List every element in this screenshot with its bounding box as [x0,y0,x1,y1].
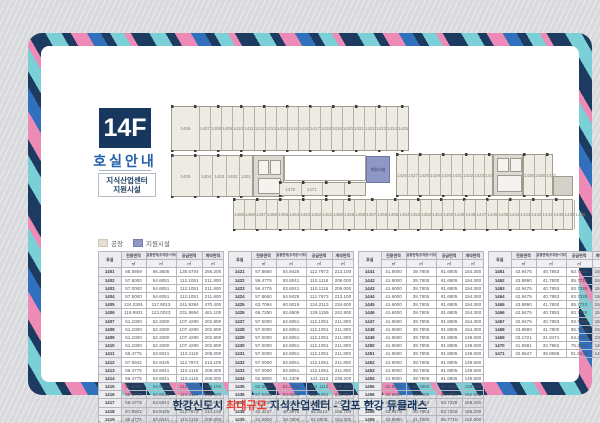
area-cell: 41.9000 [381,333,406,341]
core-cell [497,175,522,192]
area-cell: 41.9000 [381,317,406,325]
room-number: 1446 [487,212,497,217]
plan-room-1446: 1446 [487,200,498,229]
area-cell: 81.6246 [566,350,592,358]
area-cell: 241.9394 [176,301,202,309]
col-unit: ㎡ [436,260,462,268]
room-cell: 1468 [489,325,512,333]
plan-room-1421: 1421 [354,107,365,150]
area-cell: 51.1000 [121,317,146,325]
area-cell: 81.6805 [436,350,462,358]
room-cell: 1467 [489,317,512,325]
table-row: 1405124.0391117.9013241.9394470.400 [99,301,224,309]
area-cell: 117.9013 [146,301,176,309]
area-cell: 213.100 [202,358,223,366]
room-number: 1423 [376,126,386,131]
table-row: 143157.000054.6051112.1051211.800 [229,350,354,358]
table-row: 146342.947540.785383.7328158.200 [489,284,600,292]
area-cell: 62.6805 [251,383,276,391]
area-cell: 124.0391 [121,301,146,309]
page-title: 호실안내 [87,151,163,171]
room-number: 1439 [564,212,574,217]
col-header: 전용면적 [251,252,276,260]
room-number: 1456 [377,212,387,217]
area-cell: 110.1116 [306,284,332,292]
area-cell: 140.800 [592,342,600,350]
area-cell: 39.7805 [406,325,436,333]
plan-room-1419: 1419 [332,107,343,150]
room-cell: 1448 [359,325,382,333]
area-cell: 208.000 [202,366,223,374]
area-cell: 112.7973 [306,292,332,300]
col-unit: ㎡ [176,260,202,268]
atrium-void [284,155,366,181]
col-unit: ㎡ [406,260,436,268]
room-number: 1444 [509,212,519,217]
area-cell: 41.9000 [381,350,406,358]
room-number: 1410 [233,126,243,131]
col-header: 계약면적 [592,252,600,260]
plan-room-1413: 1413 [266,107,277,150]
area-cell: 83.7328 [566,309,592,317]
plan-room-1455: 1455 [388,200,399,229]
area-cell: 129.1159 [306,309,332,317]
support-facility-room: 지원시설 [366,156,390,183]
plan-room-1402: 1402 [227,156,240,196]
room-number: 1449 [454,212,464,217]
area-cell: 208.000 [332,276,353,284]
col-unit: ㎡ [251,260,276,268]
area-cell: 42.9475 [511,292,536,300]
area-cell: 85.7710 [566,325,592,333]
area-cell: 56.4775 [251,284,276,292]
area-cell: 42.5547 [511,350,536,358]
plan-room-1431: 1431 [452,155,463,195]
room-cell: 1427 [229,317,252,325]
plan-band-top: 1406140714081409141014111412141314141415… [171,106,409,151]
table-row: 144541.900039.780581.6805154.300 [359,301,484,309]
area-cell: 57.8942 [121,383,146,391]
area-cell: 158.200 [592,309,600,317]
area-cell: 208.000 [202,350,223,358]
area-cell: 149.500 [462,342,483,350]
area-cell: 158.200 [592,284,600,292]
area-cell: 60.5019 [276,301,306,309]
table-row: 143257.000054.6051112.1051211.800 [229,358,354,366]
table-row: 147142.554739.069981.6246141.100 [489,350,600,358]
room-number: 1451 [432,212,442,217]
service-annex [553,176,573,196]
plan-room-1459: 1459 [344,200,355,229]
area-cell: 39.7805 [406,350,436,358]
room-cell: 1430 [229,342,252,350]
area-cell: 54.9425 [146,383,176,391]
col-unit: ㎡ [276,260,306,268]
area-cell: 112.1051 [306,333,332,341]
area-cell: 124.1113 [306,383,332,391]
area-cell: 81.6805 [436,292,462,300]
tagline-brand: 김포 한강 듀클래스 [340,400,427,412]
legend-item-support: 지원시설 [133,238,170,248]
room-number: 1408 [211,126,221,131]
area-cell: 39.7805 [406,342,436,350]
area-cell: 41.9000 [381,358,406,366]
legend-label: 지원시설 [146,238,170,248]
room-number: 1436 [535,173,545,178]
area-cell: 208.000 [332,284,353,292]
room-cell: 1449 [359,333,382,341]
table-row: 143462.680561.4308124.1113236.200 [229,374,354,382]
plan-room-1423: 1423 [376,107,387,150]
area-cell: 41.9000 [381,276,406,284]
room-cell: 1465 [489,301,512,309]
header-divider [99,170,151,171]
plan-room-1466: 1466 [267,200,278,229]
area-cell: 41.9000 [381,301,406,309]
table-row: 145041.900039.780581.6805149.500 [359,342,484,350]
plan-room-1470: 1470 [280,183,302,195]
plan-room-1426: 1426 [397,155,408,195]
table-row: 144341.900039.780581.6805154.300 [359,284,484,292]
area-cell: 41.5581 [511,342,536,350]
area-cell: 202.900 [202,317,223,325]
area-cell: 470.400 [202,301,223,309]
elevator-core-right [493,154,523,196]
area-cell: 41.9000 [381,325,406,333]
col-header: 공급면적 [306,252,332,260]
area-cell: 110.1116 [176,374,202,382]
area-cell: 85.7710 [566,301,592,309]
area-cell: 52.3290 [146,325,176,333]
table-row: 142157.866054.9425112.7973213.100 [229,268,354,276]
area-cell: 112.1051 [306,350,332,358]
area-cell: 40.7853 [536,284,566,292]
col-unit: ㎡ [146,260,176,268]
area-cell: 39.7805 [406,333,436,341]
area-cell: 124.1113 [306,374,332,382]
area-cell: 41.9000 [381,374,406,382]
room-cell: 1413 [99,366,122,374]
area-cell: 81.6805 [436,366,462,374]
col-unit: ㎡ [536,260,566,268]
area-cell: 112.1051 [176,284,202,292]
core-cell [258,178,281,194]
room-cell: 1453 [359,366,382,374]
area-cell: 57.8660 [251,268,276,276]
area-cell: 39.7805 [406,284,436,292]
area-cell: 154.300 [462,309,483,317]
room-cell: 1426 [229,309,252,317]
area-cell: 64.2192 [566,333,592,341]
area-cell: 236.200 [332,374,353,382]
table-row: 143357.000054.6051112.1051211.800 [229,366,354,374]
area-cell: 39.7805 [406,301,436,309]
room-cell: 1421 [229,268,252,276]
area-cell: 66.3605 [146,268,176,276]
area-cell: 61.4308 [276,374,306,382]
area-cell: 85.7710 [566,276,592,284]
room-cell: 1445 [359,301,382,309]
room-number: 1421 [354,126,364,131]
plan-room-1415: 1415 [288,107,299,150]
plan-room-1460: 1460 [333,200,344,229]
col-unit: ㎡ [332,260,353,268]
col-header: 공급면적 [566,252,592,260]
plan-room-1464: 1464 [289,200,300,229]
table-row: 140951.100052.3290107.4290202.900 [99,333,224,341]
room-number: 1416 [299,126,309,131]
col-header: 전용면적 [381,252,406,260]
plan-room-1443: 1443 [520,200,531,229]
area-cell: 54.6051 [276,333,306,341]
room-number: 1417 [310,126,320,131]
area-cell: 81.6805 [436,374,462,382]
area-cell: 57.0000 [251,358,276,366]
room-cell: 1435 [229,383,252,391]
area-cell: 51.1000 [121,342,146,350]
area-cell: 39.7805 [406,268,436,276]
area-cell: 54.6051 [276,358,306,366]
col-unit: ㎡ [381,260,406,268]
table-row: 1406119.9931113.0023231.9954461.100 [99,309,224,317]
area-cell: 110.1116 [306,276,332,284]
area-cell: 40.7853 [536,309,566,317]
area-cell: 66.7250 [251,309,276,317]
area-cell: 256.200 [202,268,223,276]
unit-table: 호실전용면적공용면적(주차장+기타)공급면적계약면적㎡㎡㎡㎡146142.947… [488,251,600,358]
col-unit: ㎡ [462,260,483,268]
tagline-highlight: 최대규모 [226,400,266,412]
room-cell: 1428 [229,325,252,333]
plan-room-1412: 1412 [255,107,266,150]
area-cell: 81.6805 [436,325,462,333]
area-cell: 54.6051 [276,342,306,350]
room-cell: 1401 [99,268,122,276]
area-cell: 54.9425 [276,292,306,300]
table-row: 143057.000054.6051112.1051211.800 [229,342,354,350]
area-cell: 112.1051 [176,276,202,284]
area-cell: 43.8890 [511,276,536,284]
area-cell: 112.7973 [176,358,202,366]
area-cell: 54.6051 [276,325,306,333]
area-cell: 57.0000 [251,333,276,341]
room-number: 1406 [180,126,190,131]
room-number: 1405 [180,174,190,179]
area-cell: 110.1116 [176,350,202,358]
table-row: 144741.900039.780581.6805154.300 [359,317,484,325]
area-cell: 52.3290 [146,342,176,350]
area-cell: 42.9475 [511,317,536,325]
col-header: 공용면적(주차장+기타) [276,252,306,260]
area-cell: 202.900 [202,333,223,341]
core-cell [497,158,509,172]
area-cell: 211.800 [332,342,353,350]
room-cell: 1446 [359,309,382,317]
area-cell: 158.200 [462,383,483,391]
table-row: 142757.500054.6051112.1051211.800 [229,317,354,325]
plan-band-mid-right-a: 142614271428142914301431143214331434 [396,154,493,196]
area-cell: 83.7328 [436,383,462,391]
room-number: 1432 [463,173,473,178]
plan-room-1468: 1468 [245,200,256,229]
plan-room-1405: 1405 [172,156,200,196]
col-header: 계약면적 [462,252,483,260]
plan-room-1458: 1458 [355,200,366,229]
area-cell: 57.0000 [251,325,276,333]
area-cell: 57.5000 [251,317,276,325]
area-cell: 211.800 [202,292,223,300]
room-cell: 1411 [99,350,122,358]
area-cell: 56.4775 [121,374,146,382]
area-cell: 61.4308 [276,383,306,391]
room-number: 1441 [542,212,552,217]
area-cell: 33.7862 [536,342,566,350]
area-cell: 62.6909 [276,309,306,317]
room-cell: 1450 [359,342,382,350]
plan-band-strip: 14701471 [279,182,366,196]
area-cell: 81.6805 [436,301,462,309]
area-cell: 43.8890 [511,301,536,309]
room-number: 1435 [524,173,534,178]
col-unit: ㎡ [306,260,332,268]
room-cell: 1443 [359,284,382,292]
room-number: 1468 [245,212,255,217]
plan-room-1441: 1441 [542,200,553,229]
table-row: 146142.947540.785383.7328158.200 [489,268,600,276]
room-cell: 1424 [229,292,252,300]
legend-label: 공장 [111,238,123,248]
room-cell: 1466 [489,309,512,317]
area-cell: 208.000 [202,374,223,382]
room-cell: 1414 [99,374,122,382]
brochure-page: 14F 호실안내 지식산업센터 지원시설 1406140714081409141… [0,0,600,423]
area-cell: 81.6805 [436,309,462,317]
area-cell: 112.1051 [306,342,332,350]
room-number: 1460 [333,212,343,217]
floor-number: 14F [103,114,146,143]
room-cell: 1462 [489,276,512,284]
area-cell: 42.9475 [511,284,536,292]
col-unit: ㎡ [592,260,600,268]
area-cell: 54.6051 [276,317,306,325]
col-header: 공급면적 [176,252,202,260]
area-cell: 40.7853 [406,383,436,391]
room-cell: 1461 [489,268,512,276]
room-number: 1462 [311,212,321,217]
area-cell: 52.3290 [146,317,176,325]
area-cell: 54.6051 [146,284,176,292]
plan-room-1403: 1403 [213,156,226,196]
col-header-room: 호실 [489,252,512,268]
area-cell: 42.9475 [511,268,536,276]
room-number: 1424 [387,126,397,131]
area-cell: 81.6805 [436,333,462,341]
room-number: 1464 [289,212,299,217]
room-cell: 1432 [229,358,252,366]
plan-room-1424: 1424 [387,107,398,150]
area-cell: 39.0699 [536,350,566,358]
area-cell: 41.9000 [381,284,406,292]
plan-room-1444: 1444 [509,200,520,229]
area-cell: 83.7328 [566,292,592,300]
area-cell: 41.7800 [536,276,566,284]
room-cell: 1464 [489,292,512,300]
area-cell: 53.6041 [146,366,176,374]
table-row: 140165.586966.3605135.6704256.200 [99,268,224,276]
room-number: 1426 [397,173,407,178]
plan-room-1456: 1456 [377,200,388,229]
plan-room-1462: 1462 [311,200,322,229]
table-row: 144141.900039.780581.6805154.300 [359,268,484,276]
room-cell: 1444 [359,292,382,300]
room-number: 1414 [277,126,287,131]
area-cell: 162.000 [592,325,600,333]
floor-plan: 1406140714081409141014111412141314141415… [161,98,600,243]
table-row: 145341.900039.780581.6805149.500 [359,366,484,374]
area-cell: 149.500 [462,350,483,358]
area-cell: 42.9475 [381,383,406,391]
area-cell: 112.7973 [306,268,332,276]
col-header: 계약면적 [202,252,223,260]
plan-room-1440: 1440 [553,200,564,229]
area-cell: 130.200 [592,333,600,341]
room-number: 1454 [399,212,409,217]
area-cell: 57.5000 [121,292,146,300]
plan-room-1408: 1408 [211,107,222,150]
table-row: 144641.900039.780581.6805154.300 [359,309,484,317]
area-cell: 83.7328 [566,268,592,276]
col-header: 전용면적 [121,252,146,260]
room-number: 1450 [443,212,453,217]
room-number: 1442 [531,212,541,217]
col-header: 공급면적 [436,252,462,260]
area-cell: 51.1000 [121,325,146,333]
area-cell: 54.6051 [146,292,176,300]
plan-room-1416: 1416 [299,107,310,150]
area-cell: 162.000 [462,415,483,423]
table-row: 145141.900039.780581.6805149.500 [359,350,484,358]
room-cell: 1402 [99,276,122,284]
plan-room-1427: 1427 [408,155,419,195]
room-number: 1430 [441,173,451,178]
footer-tagline: 한강신도시 최대규모 지식산업센터 - 김포 한강 듀클래스 [0,397,600,413]
room-number: 1447 [476,212,486,217]
table-row: 144441.900039.780581.6805154.300 [359,292,484,300]
room-number: 1467 [256,212,266,217]
area-cell: 141.100 [592,350,600,358]
plan-room-1406: 1406 [172,107,200,150]
room-number: 1448 [465,212,475,217]
room-number: 1459 [344,212,354,217]
area-cell: 149.500 [462,366,483,374]
table-row: 140457.500054.6051112.1051211.800 [99,292,224,300]
area-cell: 213.100 [202,383,223,391]
col-header: 공용면적(주차장+기타) [536,252,566,260]
area-cell: 40.7853 [536,268,566,276]
area-cell: 81.6805 [436,358,462,366]
area-cell: 211.800 [332,333,353,341]
room-cell: 1404 [99,292,122,300]
area-cell: 162.000 [592,276,600,284]
room-cell: 1454 [359,374,382,382]
area-cell: 56.4775 [251,276,276,284]
room-number: 1420 [343,126,353,131]
area-cell: 211.800 [332,358,353,366]
room-number: 1401 [241,174,251,179]
table-row: 141456.477553.6041110.1116208.000 [99,374,224,382]
table-row: 145542.947540.785383.7328158.200 [359,383,484,391]
table-row: 146843.889041.780085.7710162.000 [489,325,600,333]
